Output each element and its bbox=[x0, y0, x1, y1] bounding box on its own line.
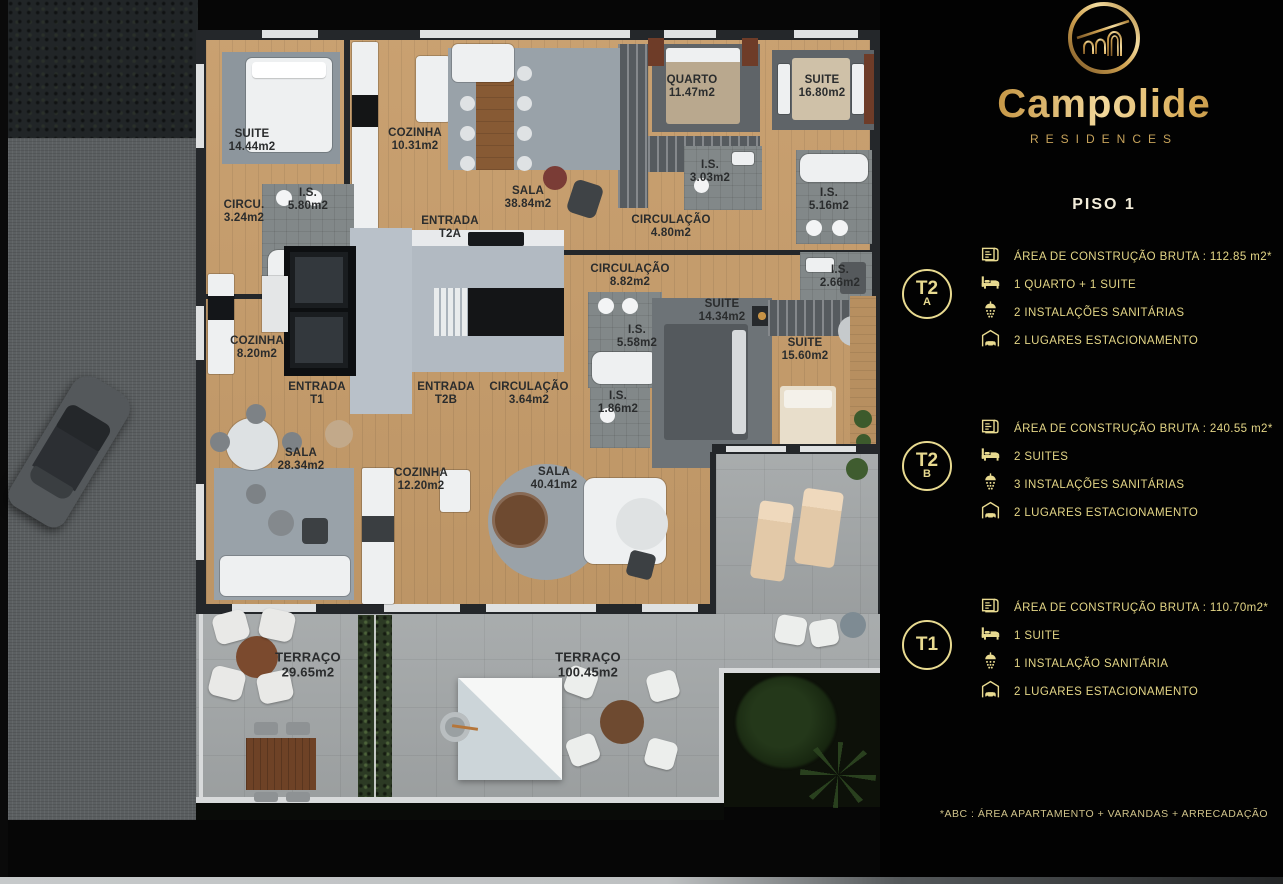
room-label: SUITE14.44m2 bbox=[229, 128, 276, 154]
room-name: COZINHA bbox=[388, 127, 442, 140]
shower-icon bbox=[980, 472, 1001, 498]
car-icon bbox=[980, 679, 1001, 705]
unit-block-t2a: T2AÁREA DE CONSTRUÇÃO BRUTA : 112.85 m2*… bbox=[880, 243, 1283, 359]
bathtub bbox=[592, 352, 658, 384]
room-name: SALA bbox=[531, 466, 578, 479]
room-label: I.S.2.66m2 bbox=[820, 264, 860, 290]
room-area: T1 bbox=[288, 394, 346, 407]
room-label: TERRAÇO100.45m2 bbox=[555, 650, 621, 679]
unit-badge-t1: T1 bbox=[902, 620, 952, 670]
bed-bench bbox=[852, 64, 864, 114]
glass-railing bbox=[374, 615, 376, 797]
shower-icon bbox=[980, 300, 1001, 326]
spec-text: ÁREA DE CONSTRUÇÃO BRUTA : 240.55 m2* bbox=[1014, 423, 1273, 435]
stair-void bbox=[468, 288, 564, 336]
room-name: SUITE bbox=[799, 74, 846, 87]
spec-text: ÁREA DE CONSTRUÇÃO BRUTA : 110.70m2* bbox=[1014, 602, 1268, 614]
room-area: 5.58m2 bbox=[617, 337, 657, 350]
headboard-post bbox=[648, 38, 664, 66]
dining-chairs bbox=[210, 432, 230, 452]
shower-icon bbox=[980, 651, 1001, 677]
room-area: 29.65m2 bbox=[275, 665, 341, 680]
hedge-corner bbox=[8, 0, 198, 138]
bottom-edge-strip bbox=[0, 877, 1283, 884]
armchair bbox=[268, 510, 294, 536]
room-area: T2B bbox=[417, 394, 475, 407]
terrace-chair bbox=[808, 618, 840, 648]
window bbox=[420, 30, 630, 38]
palm-tree bbox=[800, 742, 876, 808]
unit-badge-t2a: T2A bbox=[902, 269, 952, 319]
room-label: ENTRADAT1 bbox=[288, 381, 346, 407]
spec-row: 2 INSTALAÇÕES SANITÁRIAS bbox=[980, 299, 1275, 327]
window bbox=[664, 30, 716, 38]
room-name: SALA bbox=[278, 447, 325, 460]
sofa bbox=[452, 44, 514, 82]
room-area: 15.60m2 bbox=[782, 350, 829, 363]
spec-text: 1 QUARTO + 1 SUITE bbox=[1014, 279, 1136, 291]
floorplan-icon bbox=[980, 416, 1001, 442]
cooktop bbox=[362, 516, 394, 542]
hall-closet bbox=[618, 44, 648, 208]
round-dining-table bbox=[226, 418, 278, 470]
room-area: 5.16m2 bbox=[809, 200, 849, 213]
spec-row: ÁREA DE CONSTRUÇÃO BRUTA : 110.70m2* bbox=[980, 594, 1275, 622]
unit-specs: ÁREA DE CONSTRUÇÃO BRUTA : 110.70m2*1 SU… bbox=[980, 594, 1275, 706]
room-name: SUITE bbox=[782, 337, 829, 350]
room-name: I.S. bbox=[809, 187, 849, 200]
spec-row: 1 SUITE bbox=[980, 622, 1275, 650]
window bbox=[196, 64, 204, 148]
room-label: SALA40.41m2 bbox=[531, 466, 578, 492]
room-area: T2A bbox=[421, 228, 479, 241]
room-name: CIRCULAÇÃO bbox=[631, 214, 710, 227]
brand-tagline: RESIDENCES bbox=[925, 132, 1283, 146]
lounge-table bbox=[600, 700, 644, 744]
spec-row: 2 LUGARES ESTACIONAMENTO bbox=[980, 499, 1275, 527]
room-label: ENTRADAT2B bbox=[417, 381, 475, 407]
spec-row: ÁREA DE CONSTRUÇÃO BRUTA : 112.85 m2* bbox=[980, 243, 1275, 271]
sink bbox=[598, 298, 614, 314]
stair-treads bbox=[434, 288, 468, 336]
room-area: 4.80m2 bbox=[631, 227, 710, 240]
bidet bbox=[832, 220, 848, 236]
window bbox=[726, 446, 786, 452]
spec-text: 1 INSTALAÇÃO SANITÁRIA bbox=[1014, 658, 1168, 670]
spec-text: 2 LUGARES ESTACIONAMENTO bbox=[1014, 335, 1198, 347]
spec-text: 2 SUITES bbox=[1014, 451, 1068, 463]
room-name: I.S. bbox=[690, 159, 730, 172]
room-name: ENTRADA bbox=[288, 381, 346, 394]
sink bbox=[622, 298, 638, 314]
window bbox=[384, 604, 460, 612]
room-label: CIRCU.3.24m2 bbox=[224, 199, 265, 225]
room-label: CIRCULAÇÃO4.80m2 bbox=[631, 214, 710, 240]
room-name: TERRAÇO bbox=[555, 650, 621, 665]
elevator-2 bbox=[290, 312, 348, 368]
room-name: I.S. bbox=[820, 264, 860, 277]
room-label: COZINHA12.20m2 bbox=[394, 467, 448, 493]
spec-text: 2 INSTALAÇÕES SANITÁRIAS bbox=[1014, 307, 1184, 319]
room-label: I.S.5.16m2 bbox=[809, 187, 849, 213]
bed-pillows bbox=[732, 330, 746, 434]
room-label: I.S.5.80m2 bbox=[288, 187, 328, 213]
room-name: QUARTO bbox=[667, 74, 718, 87]
room-area: 1.86m2 bbox=[598, 403, 638, 416]
spec-text: 2 LUGARES ESTACIONAMENTO bbox=[1014, 686, 1198, 698]
cooktop bbox=[208, 296, 234, 320]
bed-pillows bbox=[666, 48, 740, 62]
bed-pillows bbox=[252, 62, 326, 78]
room-area: 100.45m2 bbox=[555, 665, 621, 680]
room-area: 2.66m2 bbox=[820, 277, 860, 290]
unit-block-t1: T1ÁREA DE CONSTRUÇÃO BRUTA : 110.70m2*1 … bbox=[880, 594, 1283, 710]
bed-bench bbox=[778, 64, 790, 114]
room-label: CIRCULAÇÃO3.64m2 bbox=[489, 381, 568, 407]
round-rug bbox=[616, 498, 668, 550]
room-label: ENTRADAT2A bbox=[421, 215, 479, 241]
page-left-edge bbox=[0, 0, 8, 884]
spec-text: 1 SUITE bbox=[1014, 630, 1060, 642]
spec-row: ÁREA DE CONSTRUÇÃO BRUTA : 240.55 m2* bbox=[980, 415, 1275, 443]
unit-badge-main: T1 bbox=[916, 636, 938, 653]
room-area: 8.82m2 bbox=[590, 276, 669, 289]
spec-row: 2 LUGARES ESTACIONAMENTO bbox=[980, 678, 1275, 706]
coffee-table bbox=[302, 518, 328, 544]
bathtub bbox=[800, 154, 868, 182]
room-area: 10.31m2 bbox=[388, 140, 442, 153]
bed-icon bbox=[980, 444, 1001, 470]
unit-badge-sub: A bbox=[923, 297, 931, 308]
footnote: *ABC : ÁREA APARTAMENTO + VARANDAS + ARR… bbox=[925, 808, 1283, 820]
balcony-deck bbox=[850, 296, 876, 452]
room-label: I.S.5.58m2 bbox=[617, 324, 657, 350]
room-area: 3.64m2 bbox=[489, 394, 568, 407]
elevator-1 bbox=[290, 252, 348, 308]
terrace-side-table bbox=[840, 612, 866, 638]
terrace-wall bbox=[199, 614, 203, 802]
wall bbox=[710, 452, 716, 612]
sofa bbox=[220, 556, 350, 596]
room-name: CIRCU. bbox=[224, 199, 265, 212]
floor-title: PISO 1 bbox=[925, 196, 1283, 214]
room-label: I.S.3.03m2 bbox=[690, 159, 730, 185]
floorplan-icon bbox=[980, 244, 1001, 270]
room-label: SALA38.84m2 bbox=[505, 185, 552, 211]
window bbox=[262, 30, 318, 38]
room-label: SALA28.34m2 bbox=[278, 447, 325, 473]
plant bbox=[854, 410, 872, 428]
room-area: 3.24m2 bbox=[224, 212, 265, 225]
unit-block-t2b: T2BÁREA DE CONSTRUÇÃO BRUTA : 240.55 m2*… bbox=[880, 415, 1283, 531]
armchair bbox=[325, 420, 353, 448]
spec-row: 2 LUGARES ESTACIONAMENTO bbox=[980, 327, 1275, 355]
window bbox=[486, 604, 596, 612]
unit-badge-sub: B bbox=[923, 469, 931, 480]
unit-badge-main: T2 bbox=[916, 280, 938, 297]
campolide-logo-icon bbox=[1064, 0, 1144, 80]
terrace-chairs bbox=[254, 792, 278, 802]
cooktop bbox=[352, 95, 378, 127]
info-panel: Campolide RESIDENCES PISO 1 T2AÁREA DE C… bbox=[880, 0, 1283, 884]
room-name: COZINHA bbox=[394, 467, 448, 480]
room-name: CIRCULAÇÃO bbox=[489, 381, 568, 394]
spec-text: 3 INSTALAÇÕES SANITÁRIAS bbox=[1014, 479, 1184, 491]
room-area: 38.84m2 bbox=[505, 198, 552, 211]
spec-text: 2 LUGARES ESTACIONAMENTO bbox=[1014, 507, 1198, 519]
brochure-page: SUITE14.44m2COZINHA10.31m2SALA38.84m2QUA… bbox=[0, 0, 1283, 884]
room-area: 40.41m2 bbox=[531, 479, 578, 492]
sink bbox=[732, 152, 754, 165]
window bbox=[196, 484, 204, 560]
car-icon bbox=[980, 328, 1001, 354]
room-area: 8.20m2 bbox=[230, 348, 284, 361]
room-label: SUITE14.34m2 bbox=[699, 298, 746, 324]
window bbox=[794, 30, 858, 38]
car-icon bbox=[980, 500, 1001, 526]
spec-row: 3 INSTALAÇÕES SANITÁRIAS bbox=[980, 471, 1275, 499]
window bbox=[800, 446, 856, 452]
room-name: ENTRADA bbox=[421, 215, 479, 228]
room-name: I.S. bbox=[598, 390, 638, 403]
headboard bbox=[864, 54, 874, 124]
bed-icon bbox=[980, 623, 1001, 649]
room-name: SALA bbox=[505, 185, 552, 198]
spec-row: 1 QUARTO + 1 SUITE bbox=[980, 271, 1275, 299]
room-name: TERRAÇO bbox=[275, 650, 341, 665]
toilet bbox=[806, 220, 822, 236]
room-area: 5.80m2 bbox=[288, 200, 328, 213]
floorplan-icon bbox=[980, 595, 1001, 621]
room-name: CIRCULAÇÃO bbox=[590, 263, 669, 276]
plant bbox=[846, 458, 868, 480]
room-label: COZINHA8.20m2 bbox=[230, 335, 284, 361]
room-area: 14.34m2 bbox=[699, 311, 746, 324]
terrace-chair bbox=[774, 614, 808, 647]
unit-specs: ÁREA DE CONSTRUÇÃO BRUTA : 112.85 m2*1 Q… bbox=[980, 243, 1275, 355]
kitchen-counter bbox=[352, 42, 378, 242]
room-area: 12.20m2 bbox=[394, 480, 448, 493]
room-area: 28.34m2 bbox=[278, 460, 325, 473]
room-area: 11.47m2 bbox=[667, 87, 718, 100]
room-label: QUARTO11.47m2 bbox=[667, 74, 718, 100]
unit-badge-main: T2 bbox=[916, 452, 938, 469]
round-table bbox=[492, 492, 548, 548]
spec-row: 1 INSTALAÇÃO SANITÁRIA bbox=[980, 650, 1275, 678]
brand-name: Campolide bbox=[925, 82, 1283, 127]
room-label: SUITE16.80m2 bbox=[799, 74, 846, 100]
room-area: 3.03m2 bbox=[690, 172, 730, 185]
headboard-post bbox=[742, 38, 758, 66]
room-label: TERRAÇO29.65m2 bbox=[275, 650, 341, 679]
room-area: 16.80m2 bbox=[799, 87, 846, 100]
room-label: I.S.1.86m2 bbox=[598, 390, 638, 416]
room-name: COZINHA bbox=[230, 335, 284, 348]
bed-pillows bbox=[784, 390, 832, 408]
room-label: SUITE15.60m2 bbox=[782, 337, 829, 363]
room-name: ENTRADA bbox=[417, 381, 475, 394]
room-name: I.S. bbox=[288, 187, 328, 200]
room-name: SUITE bbox=[229, 128, 276, 141]
terrace-dining-table bbox=[246, 738, 316, 790]
unit-specs: ÁREA DE CONSTRUÇÃO BRUTA : 240.55 m2*2 S… bbox=[980, 415, 1275, 527]
spec-row: 2 SUITES bbox=[980, 443, 1275, 471]
core-landing bbox=[350, 228, 412, 414]
unit-badge-t2b: T2B bbox=[902, 441, 952, 491]
fridge-cabinet bbox=[262, 276, 288, 332]
room-label: CIRCULAÇÃO8.82m2 bbox=[590, 263, 669, 289]
terrace-chairs bbox=[254, 722, 278, 735]
garden-strip bbox=[196, 803, 724, 820]
window bbox=[196, 306, 204, 360]
room-label: COZINHA10.31m2 bbox=[388, 127, 442, 153]
room-area: 14.44m2 bbox=[229, 141, 276, 154]
room-name: I.S. bbox=[617, 324, 657, 337]
bed-icon bbox=[980, 272, 1001, 298]
room-name: SUITE bbox=[699, 298, 746, 311]
window bbox=[642, 604, 698, 612]
spec-text: ÁREA DE CONSTRUÇÃO BRUTA : 112.85 m2* bbox=[1014, 251, 1272, 263]
